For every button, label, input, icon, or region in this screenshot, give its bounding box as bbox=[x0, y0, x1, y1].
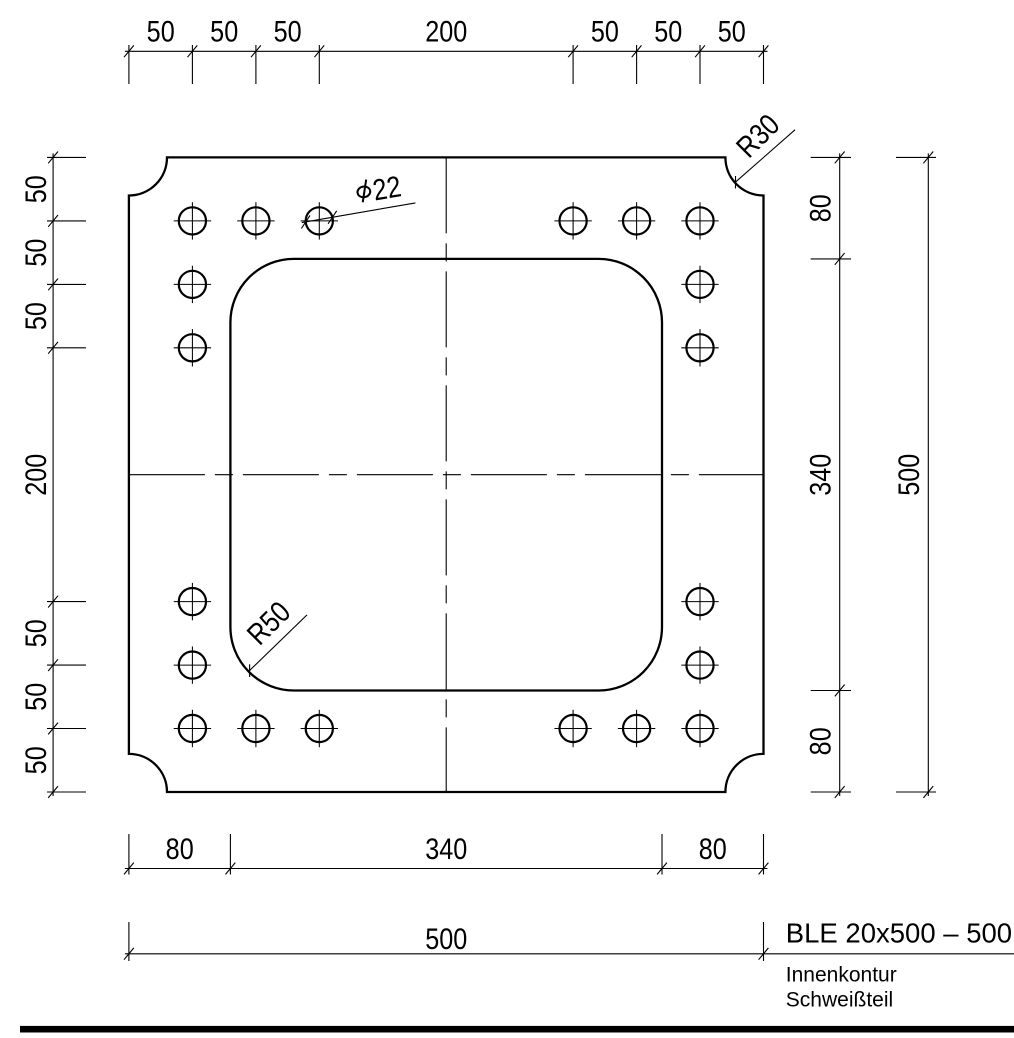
svg-text:50: 50 bbox=[274, 14, 302, 48]
svg-text:50: 50 bbox=[19, 239, 53, 267]
svg-text:80: 80 bbox=[166, 832, 194, 866]
svg-text:50: 50 bbox=[718, 14, 746, 48]
svg-text:50: 50 bbox=[147, 14, 175, 48]
svg-text:22: 22 bbox=[370, 169, 403, 207]
svg-text:80: 80 bbox=[699, 832, 727, 866]
svg-text:50: 50 bbox=[19, 175, 53, 203]
svg-text:340: 340 bbox=[425, 832, 467, 866]
svg-text:50: 50 bbox=[19, 746, 53, 774]
svg-text:Schweißteil: Schweißteil bbox=[786, 989, 893, 1012]
svg-text:80: 80 bbox=[803, 194, 837, 222]
svg-text:BLE 20x500 – 500: BLE 20x500 – 500 bbox=[786, 918, 1012, 949]
svg-text:500: 500 bbox=[892, 454, 926, 496]
svg-text:340: 340 bbox=[803, 454, 837, 496]
svg-text:50: 50 bbox=[591, 14, 619, 48]
svg-text:50: 50 bbox=[19, 619, 53, 647]
svg-text:50: 50 bbox=[210, 14, 238, 48]
svg-text:50: 50 bbox=[19, 683, 53, 711]
svg-text:200: 200 bbox=[425, 14, 467, 48]
svg-text:50: 50 bbox=[654, 14, 682, 48]
svg-text:500: 500 bbox=[425, 922, 467, 956]
svg-text:80: 80 bbox=[803, 727, 837, 755]
svg-text:50: 50 bbox=[19, 302, 53, 330]
svg-text:Innenkontur: Innenkontur bbox=[786, 963, 897, 986]
svg-text:200: 200 bbox=[19, 454, 53, 496]
